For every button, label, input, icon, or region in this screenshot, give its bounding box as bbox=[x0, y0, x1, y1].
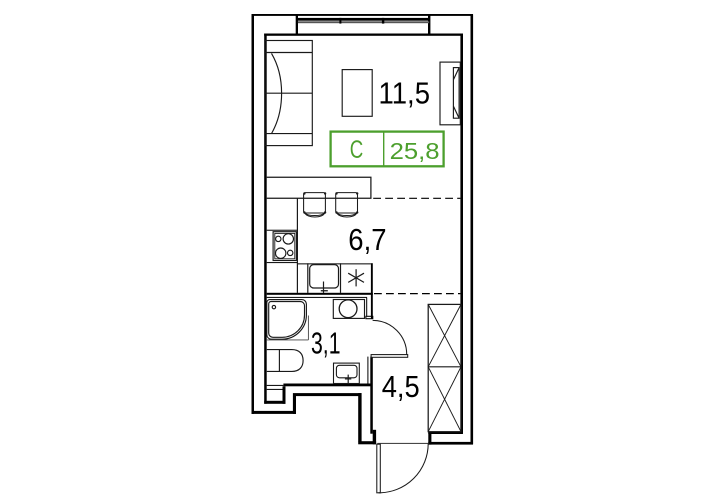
svg-text:6,7: 6,7 bbox=[348, 222, 386, 257]
svg-text:25,8: 25,8 bbox=[390, 138, 440, 164]
svg-text:С: С bbox=[350, 136, 364, 164]
svg-text:4,5: 4,5 bbox=[382, 369, 420, 404]
svg-text:3,1: 3,1 bbox=[311, 325, 341, 360]
svg-text:11,5: 11,5 bbox=[379, 76, 431, 111]
